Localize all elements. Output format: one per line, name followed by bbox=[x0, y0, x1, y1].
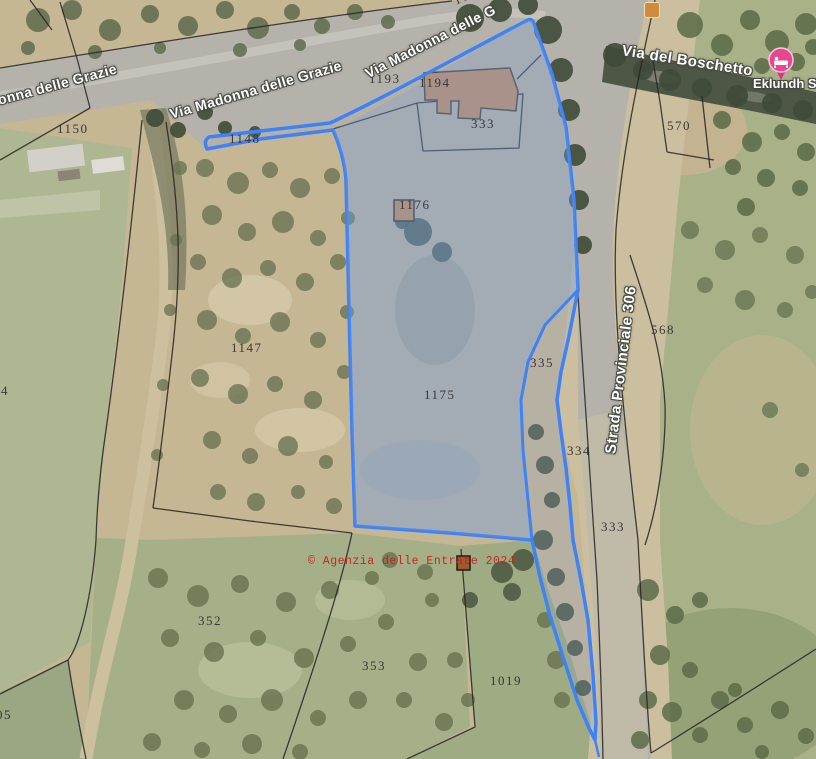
parcel-label: 568 bbox=[651, 322, 675, 338]
parcel-label: 05 bbox=[0, 707, 12, 723]
satellite-layer bbox=[0, 0, 816, 759]
parcel-label: 353 bbox=[362, 658, 386, 674]
parcel-label: 1147 bbox=[231, 340, 263, 356]
parcel-label: 335 bbox=[530, 355, 554, 371]
poi-label[interactable]: Eklundh S bbox=[753, 76, 816, 91]
parcel-label: 1150 bbox=[57, 121, 89, 137]
parcel-label: 570 bbox=[667, 118, 691, 134]
parcel-label: 352 bbox=[198, 613, 222, 629]
poi-marker-icon[interactable] bbox=[644, 2, 660, 18]
map-canvas[interactable]: 1150 1148 1193 1194 333 570 1176 1147 11… bbox=[0, 0, 816, 759]
parcel-label: 333 bbox=[601, 519, 625, 535]
parcel-label: 333 bbox=[471, 116, 495, 132]
parcel-label: 1148 bbox=[229, 131, 261, 147]
parcel-label: 1176 bbox=[399, 197, 431, 213]
parcel-label: 334 bbox=[567, 443, 591, 459]
parcel-label: 1019 bbox=[490, 673, 522, 689]
parcel-label: 1175 bbox=[424, 387, 456, 403]
parcel-label: 4 bbox=[1, 383, 9, 399]
attribution-watermark: © Agenzia delle Entrate 2024 bbox=[308, 555, 515, 568]
parcel-label: 1194 bbox=[419, 75, 451, 91]
